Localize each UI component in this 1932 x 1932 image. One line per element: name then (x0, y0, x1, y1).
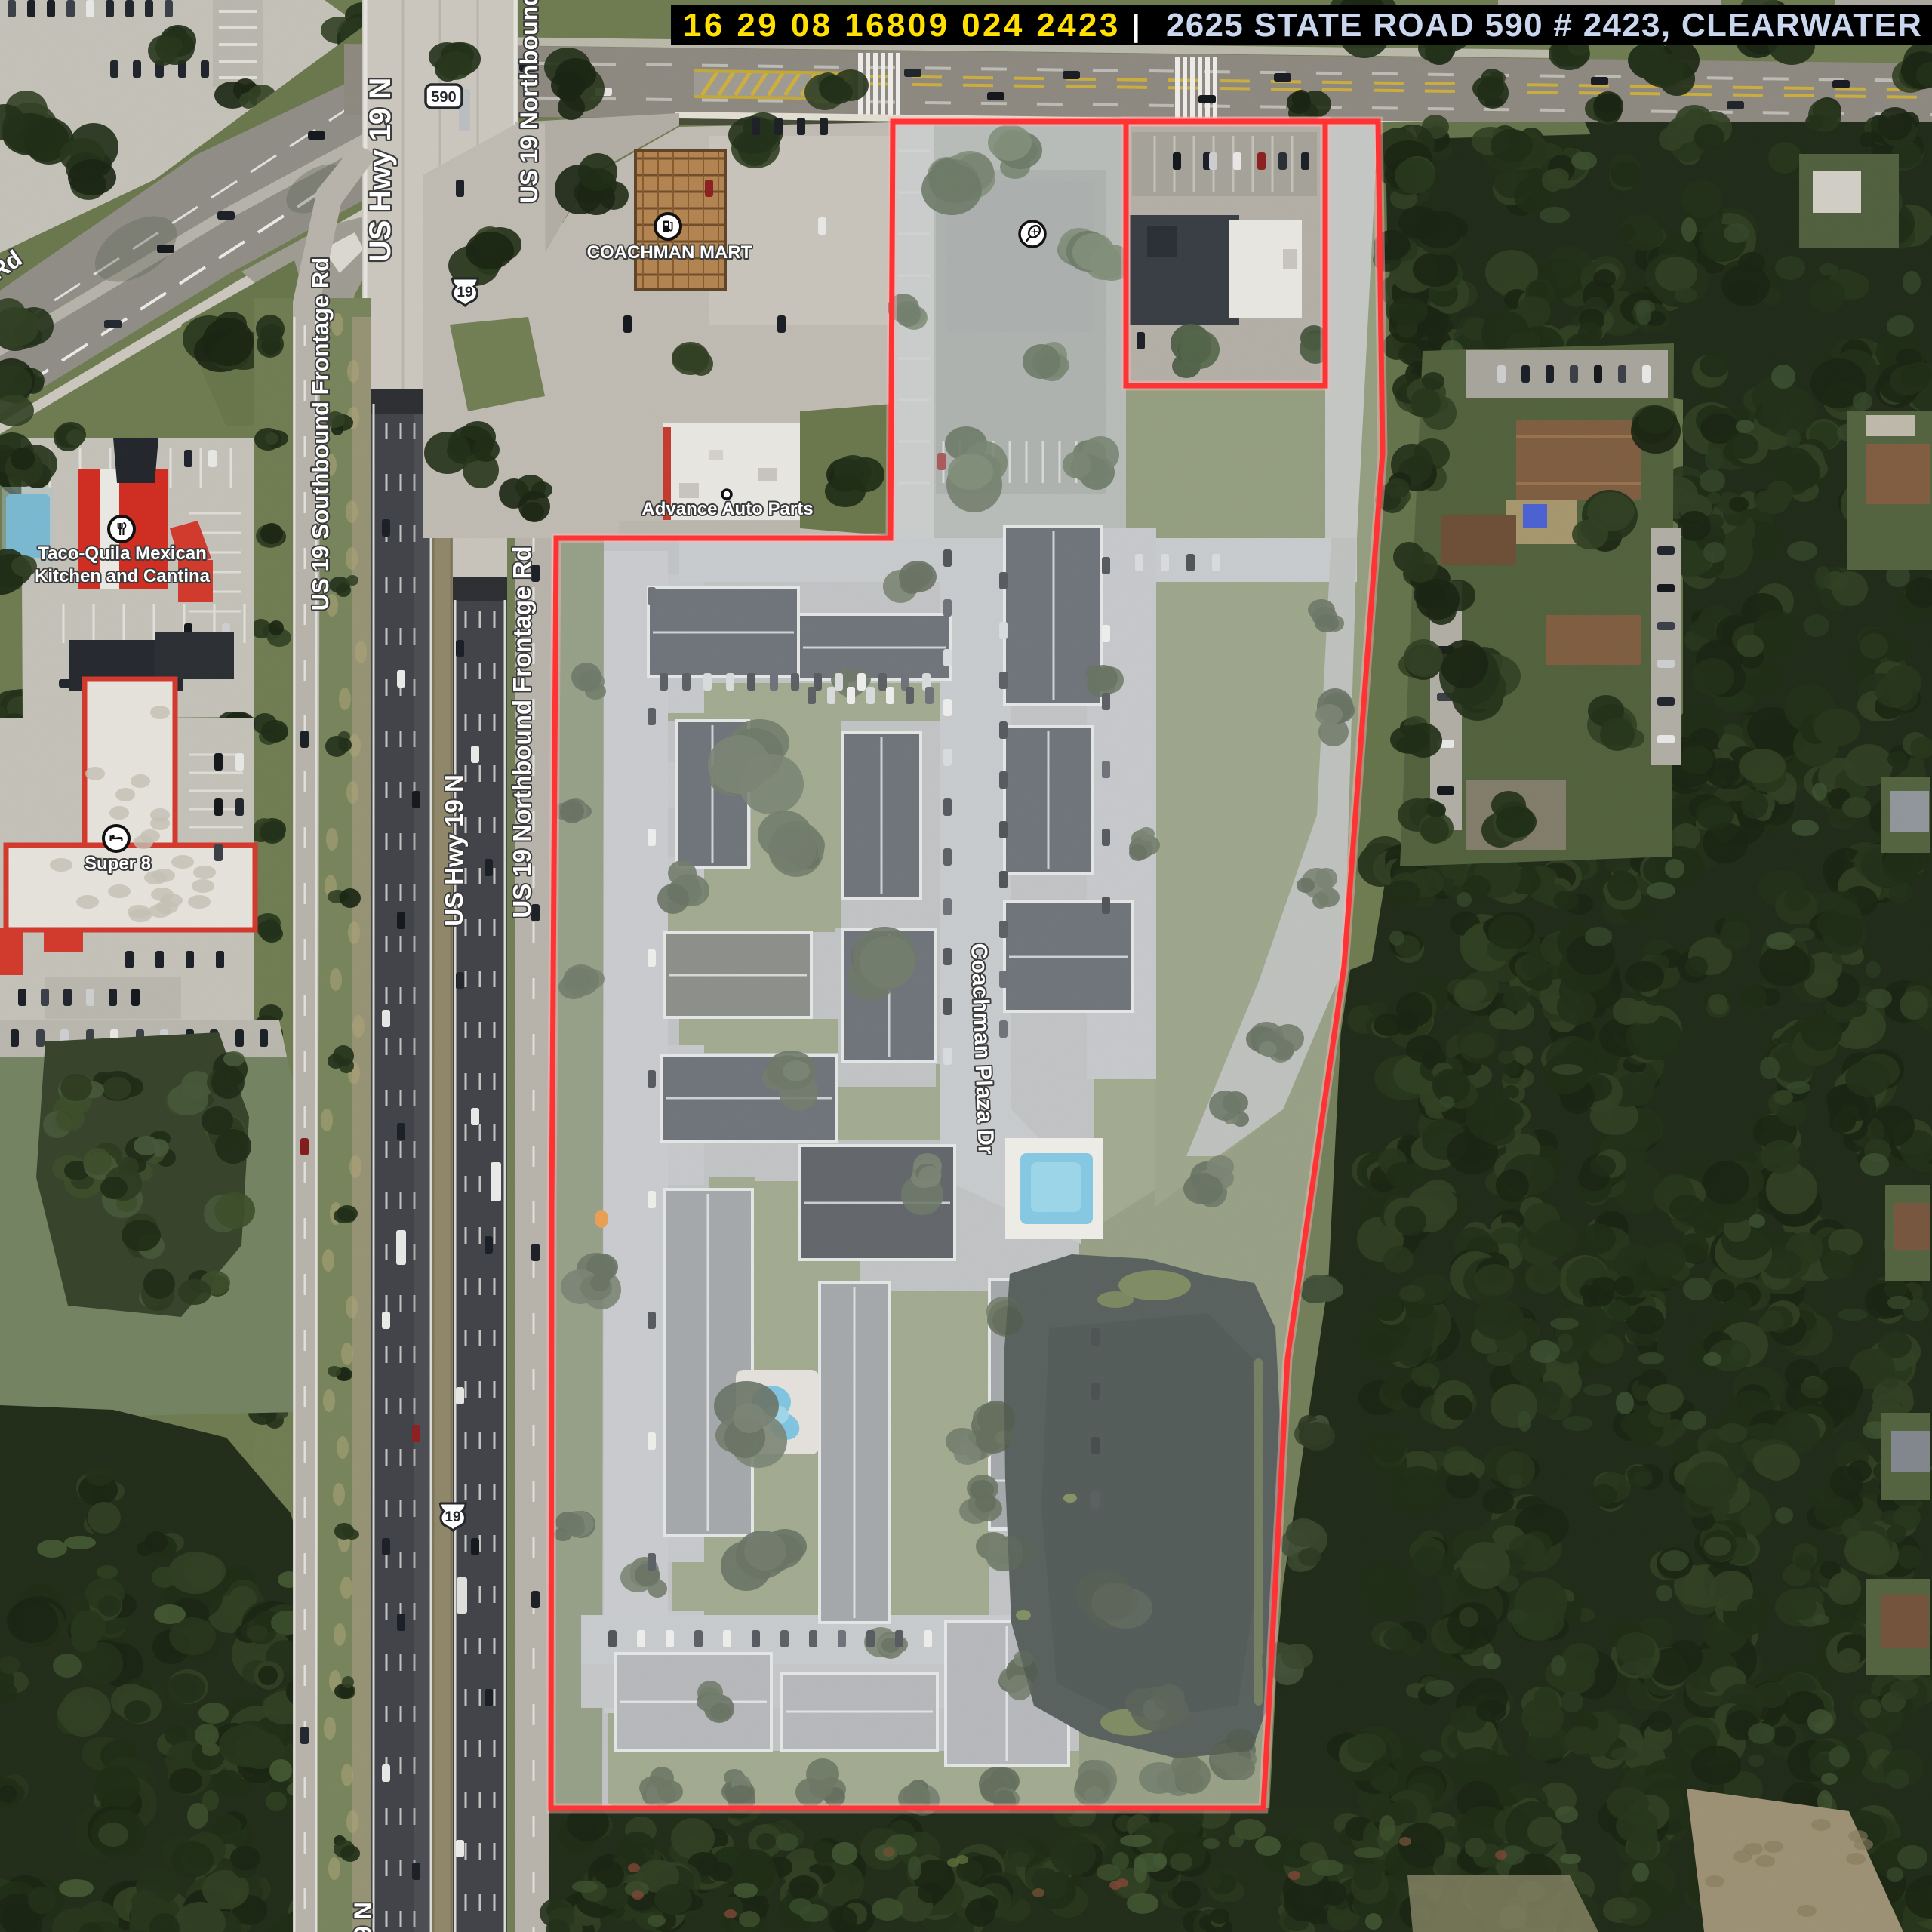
svg-text:Kitchen and Cantina: Kitchen and Cantina (35, 566, 211, 586)
svg-text:US 19 Northbound Frontage Rd: US 19 Northbound Frontage Rd (508, 546, 536, 918)
svg-text:16 29 08 16809 024 2423: 16 29 08 16809 024 2423 (683, 7, 1121, 44)
svg-text:US 19 Southbound Frontage Rd: US 19 Southbound Frontage Rd (307, 257, 334, 611)
svg-text:US Hwy 19 N: US Hwy 19 N (364, 78, 397, 263)
svg-text:US Hwy 19 N: US Hwy 19 N (349, 1902, 377, 1932)
svg-text:2625 STATE ROAD 590 # 2423, CL: 2625 STATE ROAD 590 # 2423, CLEARWATER (1166, 7, 1922, 44)
svg-text:19: 19 (457, 285, 472, 300)
svg-text:|: | (1131, 10, 1140, 43)
svg-text:Advance Auto Parts: Advance Auto Parts (641, 499, 813, 519)
svg-text:US 19 Northbound Frontage Rd: US 19 Northbound Frontage Rd (515, 0, 543, 203)
svg-text:US Hwy 19 N: US Hwy 19 N (440, 774, 468, 927)
svg-text:Taco-Quila Mexican: Taco-Quila Mexican (38, 543, 207, 564)
svg-text:590: 590 (431, 89, 456, 106)
svg-text:19: 19 (445, 1509, 460, 1525)
svg-text:Super 8: Super 8 (85, 854, 151, 874)
svg-text:COACHMAN MART: COACHMAN MART (587, 242, 752, 263)
